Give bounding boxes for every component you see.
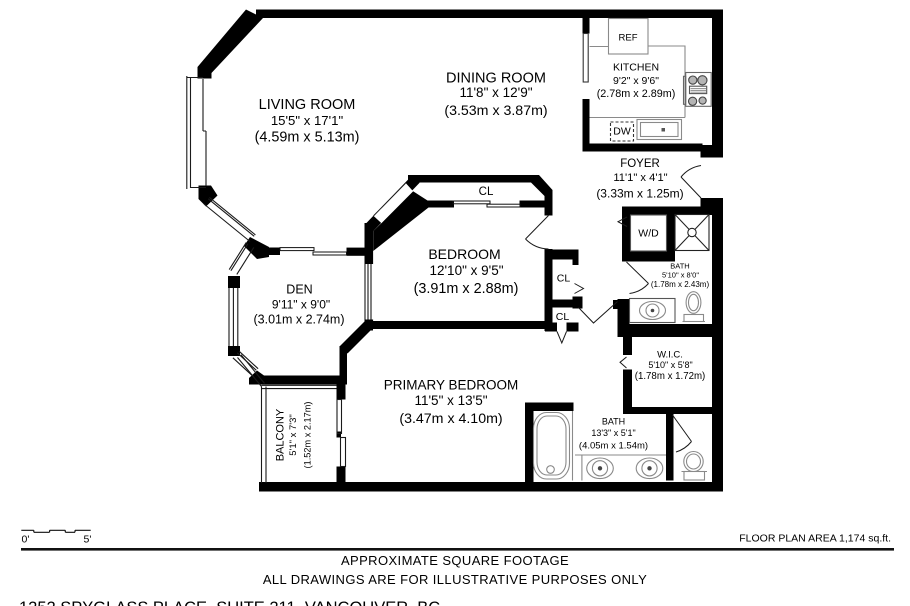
svg-text:BALCONY: BALCONY [274, 408, 286, 461]
svg-text:(3.53m x 3.87m): (3.53m x 3.87m) [444, 103, 547, 119]
svg-text:(3.47m x 4.10m): (3.47m x 4.10m) [399, 411, 502, 427]
svg-text:PRIMARY BEDROOM: PRIMARY BEDROOM [384, 377, 519, 392]
svg-text:11'8" x 12'9": 11'8" x 12'9" [459, 85, 532, 100]
svg-text:0': 0' [22, 534, 30, 546]
svg-text:(3.33m x 1.25m): (3.33m x 1.25m) [596, 187, 683, 201]
svg-text:W/D: W/D [638, 228, 659, 240]
svg-text:11'5" x 13'5": 11'5" x 13'5" [414, 393, 487, 408]
svg-text:DW: DW [613, 125, 631, 137]
svg-text:5'1" x 7'3": 5'1" x 7'3" [288, 414, 299, 456]
svg-text:(1.78m x 2.43m): (1.78m x 2.43m) [651, 280, 710, 289]
svg-text:LIVING ROOM: LIVING ROOM [259, 97, 356, 113]
svg-text:(4.05m x 1.54m): (4.05m x 1.54m) [579, 440, 648, 451]
svg-text:BATH: BATH [602, 417, 625, 427]
svg-text:FLOOR PLAN AREA 1,174 sq.ft.: FLOOR PLAN AREA 1,174 sq.ft. [739, 533, 891, 545]
svg-text:FOYER: FOYER [620, 158, 660, 170]
svg-text:(3.91m x 2.88m): (3.91m x 2.88m) [414, 281, 519, 297]
svg-text:11'1" x 4'1": 11'1" x 4'1" [613, 172, 667, 184]
svg-text:(3.01m x 2.74m): (3.01m x 2.74m) [253, 313, 344, 327]
svg-text:5'10" x 5'8": 5'10" x 5'8" [648, 360, 692, 370]
svg-text:ALL DRAWINGS ARE FOR ILLUSTRAT: ALL DRAWINGS ARE FOR ILLUSTRATIVE PURPOS… [263, 572, 647, 587]
svg-text:5': 5' [84, 534, 92, 546]
svg-text:1252 SPYGLASS PLACE, SUITE 211: 1252 SPYGLASS PLACE, SUITE 211, VANCOUVE… [19, 599, 440, 606]
svg-text:(2.78m x 2.89m): (2.78m x 2.89m) [597, 88, 676, 100]
svg-text:9'2" x 9'6": 9'2" x 9'6" [613, 75, 659, 87]
svg-text:(4.59m x 5.13m): (4.59m x 5.13m) [255, 130, 360, 146]
svg-text:(1.78m x 1.72m): (1.78m x 1.72m) [635, 371, 706, 382]
svg-text:12'10" x 9'5": 12'10" x 9'5" [429, 263, 503, 278]
svg-text:BEDROOM: BEDROOM [428, 246, 500, 262]
svg-text:CL: CL [556, 311, 570, 323]
svg-text:13'3" x 5'1": 13'3" x 5'1" [591, 428, 635, 438]
svg-text:CL: CL [557, 273, 571, 285]
svg-text:W.I.C.: W.I.C. [657, 349, 683, 360]
svg-text:KITCHEN: KITCHEN [613, 62, 659, 74]
svg-text:9'11" x 9'0": 9'11" x 9'0" [272, 297, 330, 311]
svg-text:15'5" x 17'1": 15'5" x 17'1" [271, 113, 344, 128]
svg-text:REF: REF [619, 32, 638, 43]
svg-text:5'10" x 8'0": 5'10" x 8'0" [662, 271, 699, 280]
svg-text:DEN: DEN [286, 283, 312, 297]
svg-text:(1.52m x 2.17m): (1.52m x 2.17m) [303, 402, 313, 469]
svg-text:APPROXIMATE SQUARE FOOTAGE: APPROXIMATE SQUARE FOOTAGE [341, 553, 569, 568]
svg-text:BATH: BATH [670, 261, 689, 270]
svg-text:CL: CL [479, 186, 494, 198]
